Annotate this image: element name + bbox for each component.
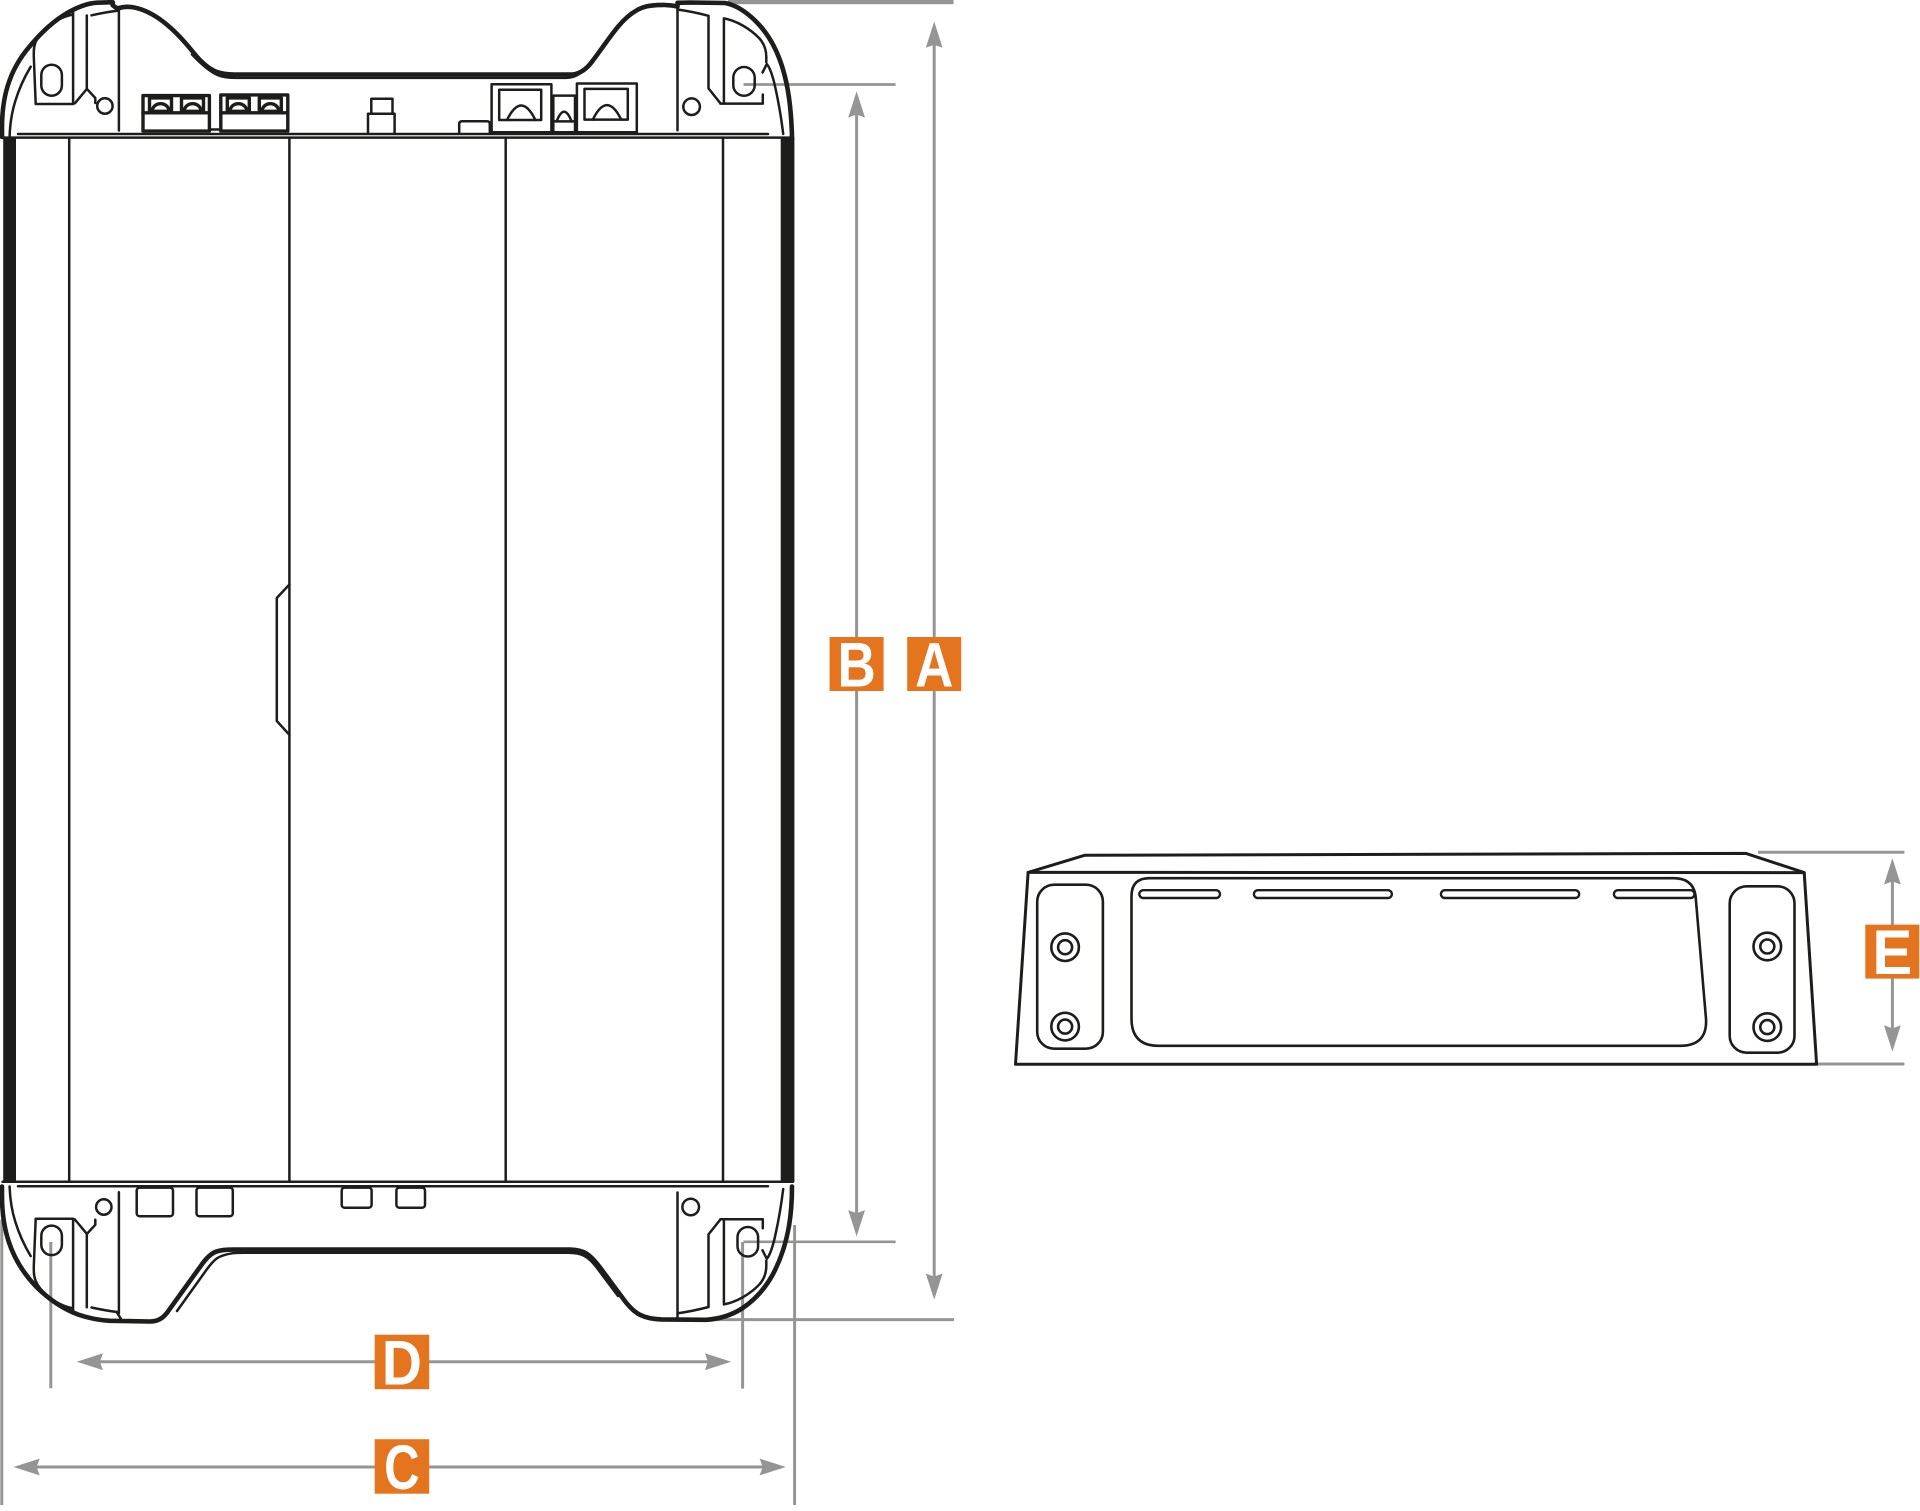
svg-text:B: B — [837, 630, 875, 700]
svg-text:D: D — [382, 1327, 422, 1398]
svg-text:A: A — [915, 630, 953, 700]
svg-text:E: E — [1872, 918, 1912, 989]
svg-text:C: C — [384, 1432, 419, 1502]
